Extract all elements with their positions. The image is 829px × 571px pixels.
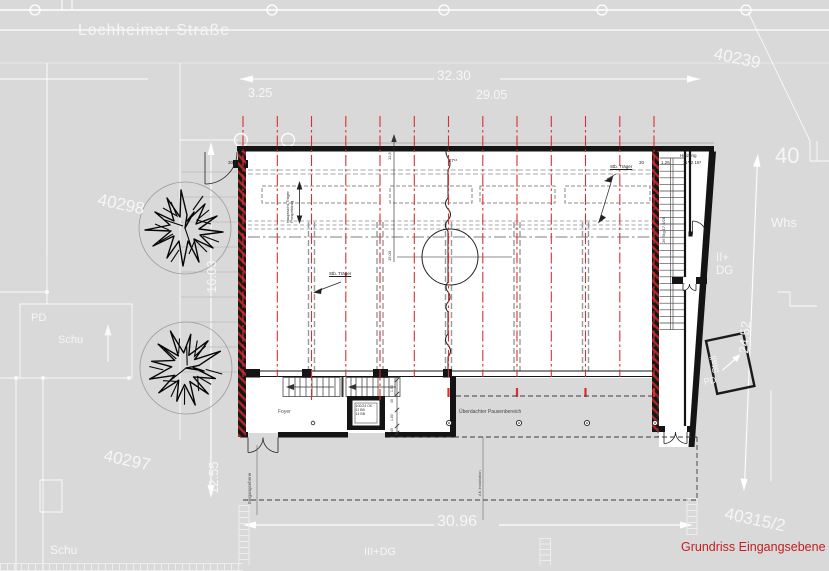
zone-schu-bottom: Schu [50, 544, 77, 557]
dim-29-05: 29.05 [476, 88, 507, 102]
dim-12-5: 12,5 [388, 152, 392, 160]
dim-chain-3: 1.80 [391, 414, 395, 421]
dim-chain-4: 45 [391, 428, 395, 432]
hatched-wall-left [238, 151, 246, 437]
plan-linework [0, 0, 829, 571]
building-fill [238, 151, 715, 447]
dim-24-52: 24.52 [737, 321, 754, 354]
zone-schu-left: Schu [58, 334, 83, 346]
fence-symbols [0, 498, 697, 571]
room-heizung-label: Heizung [680, 153, 697, 158]
plan-title: Grundriss Eingangsebene [681, 540, 826, 554]
room-foyer-label: Foyer [278, 410, 291, 416]
note-stb-traeger-1: Stb. Träger [329, 271, 351, 276]
dim-30-left: 30 [228, 160, 233, 165]
dim-3-25: 3.25 [248, 86, 272, 100]
tree-icon [127, 309, 245, 427]
elevator-label: 100/24 OK 11 BB 14 BB [356, 404, 373, 417]
stall-pd-label: PD [703, 375, 717, 387]
note-haupt-traeger: Hauptsicht-Träger Prospektzug [286, 191, 295, 223]
dim-27: 27¹⁶ [449, 158, 457, 163]
street-name: Lochheimer Straße [78, 22, 230, 39]
dim-12-55: 12.55 [207, 461, 222, 494]
room-pausenbereich-label: Überdachter Pausenbereich [459, 410, 521, 416]
dim-heizung-size: 11⁵ 2.16⁵ [683, 160, 701, 165]
zone-pd-left: PD [31, 312, 46, 324]
dim-16-03: 16.03 [205, 260, 220, 293]
dim-1-25: 1.25 [661, 160, 670, 165]
zone-iii-dg: III+DG [364, 546, 396, 558]
dim-chain-2: 45 [391, 399, 395, 403]
note-ak-install: AK Installation [478, 470, 482, 496]
zone-ii-dg: II+ DG [716, 252, 733, 278]
zone-whs: Whs [771, 216, 797, 231]
note-stb-traeger-2: Stb. Träger [610, 164, 632, 169]
dim-15-00: 15.00 [388, 251, 392, 261]
dim-30-96: 30.96 [437, 513, 477, 531]
site-plan: Lochheimer Straße 3.25 32.30 29.05 40239… [0, 0, 829, 571]
dim-32-30: 32.30 [437, 68, 471, 83]
dim-30-right: 30 [639, 160, 644, 165]
dim-chain-1: 1.50 [391, 385, 395, 392]
parcel-40: 40 [775, 144, 799, 169]
note-stair-spec: 26 Stg 17,9/28 [662, 217, 666, 243]
note-eingang: Eingangsebene [247, 473, 252, 504]
